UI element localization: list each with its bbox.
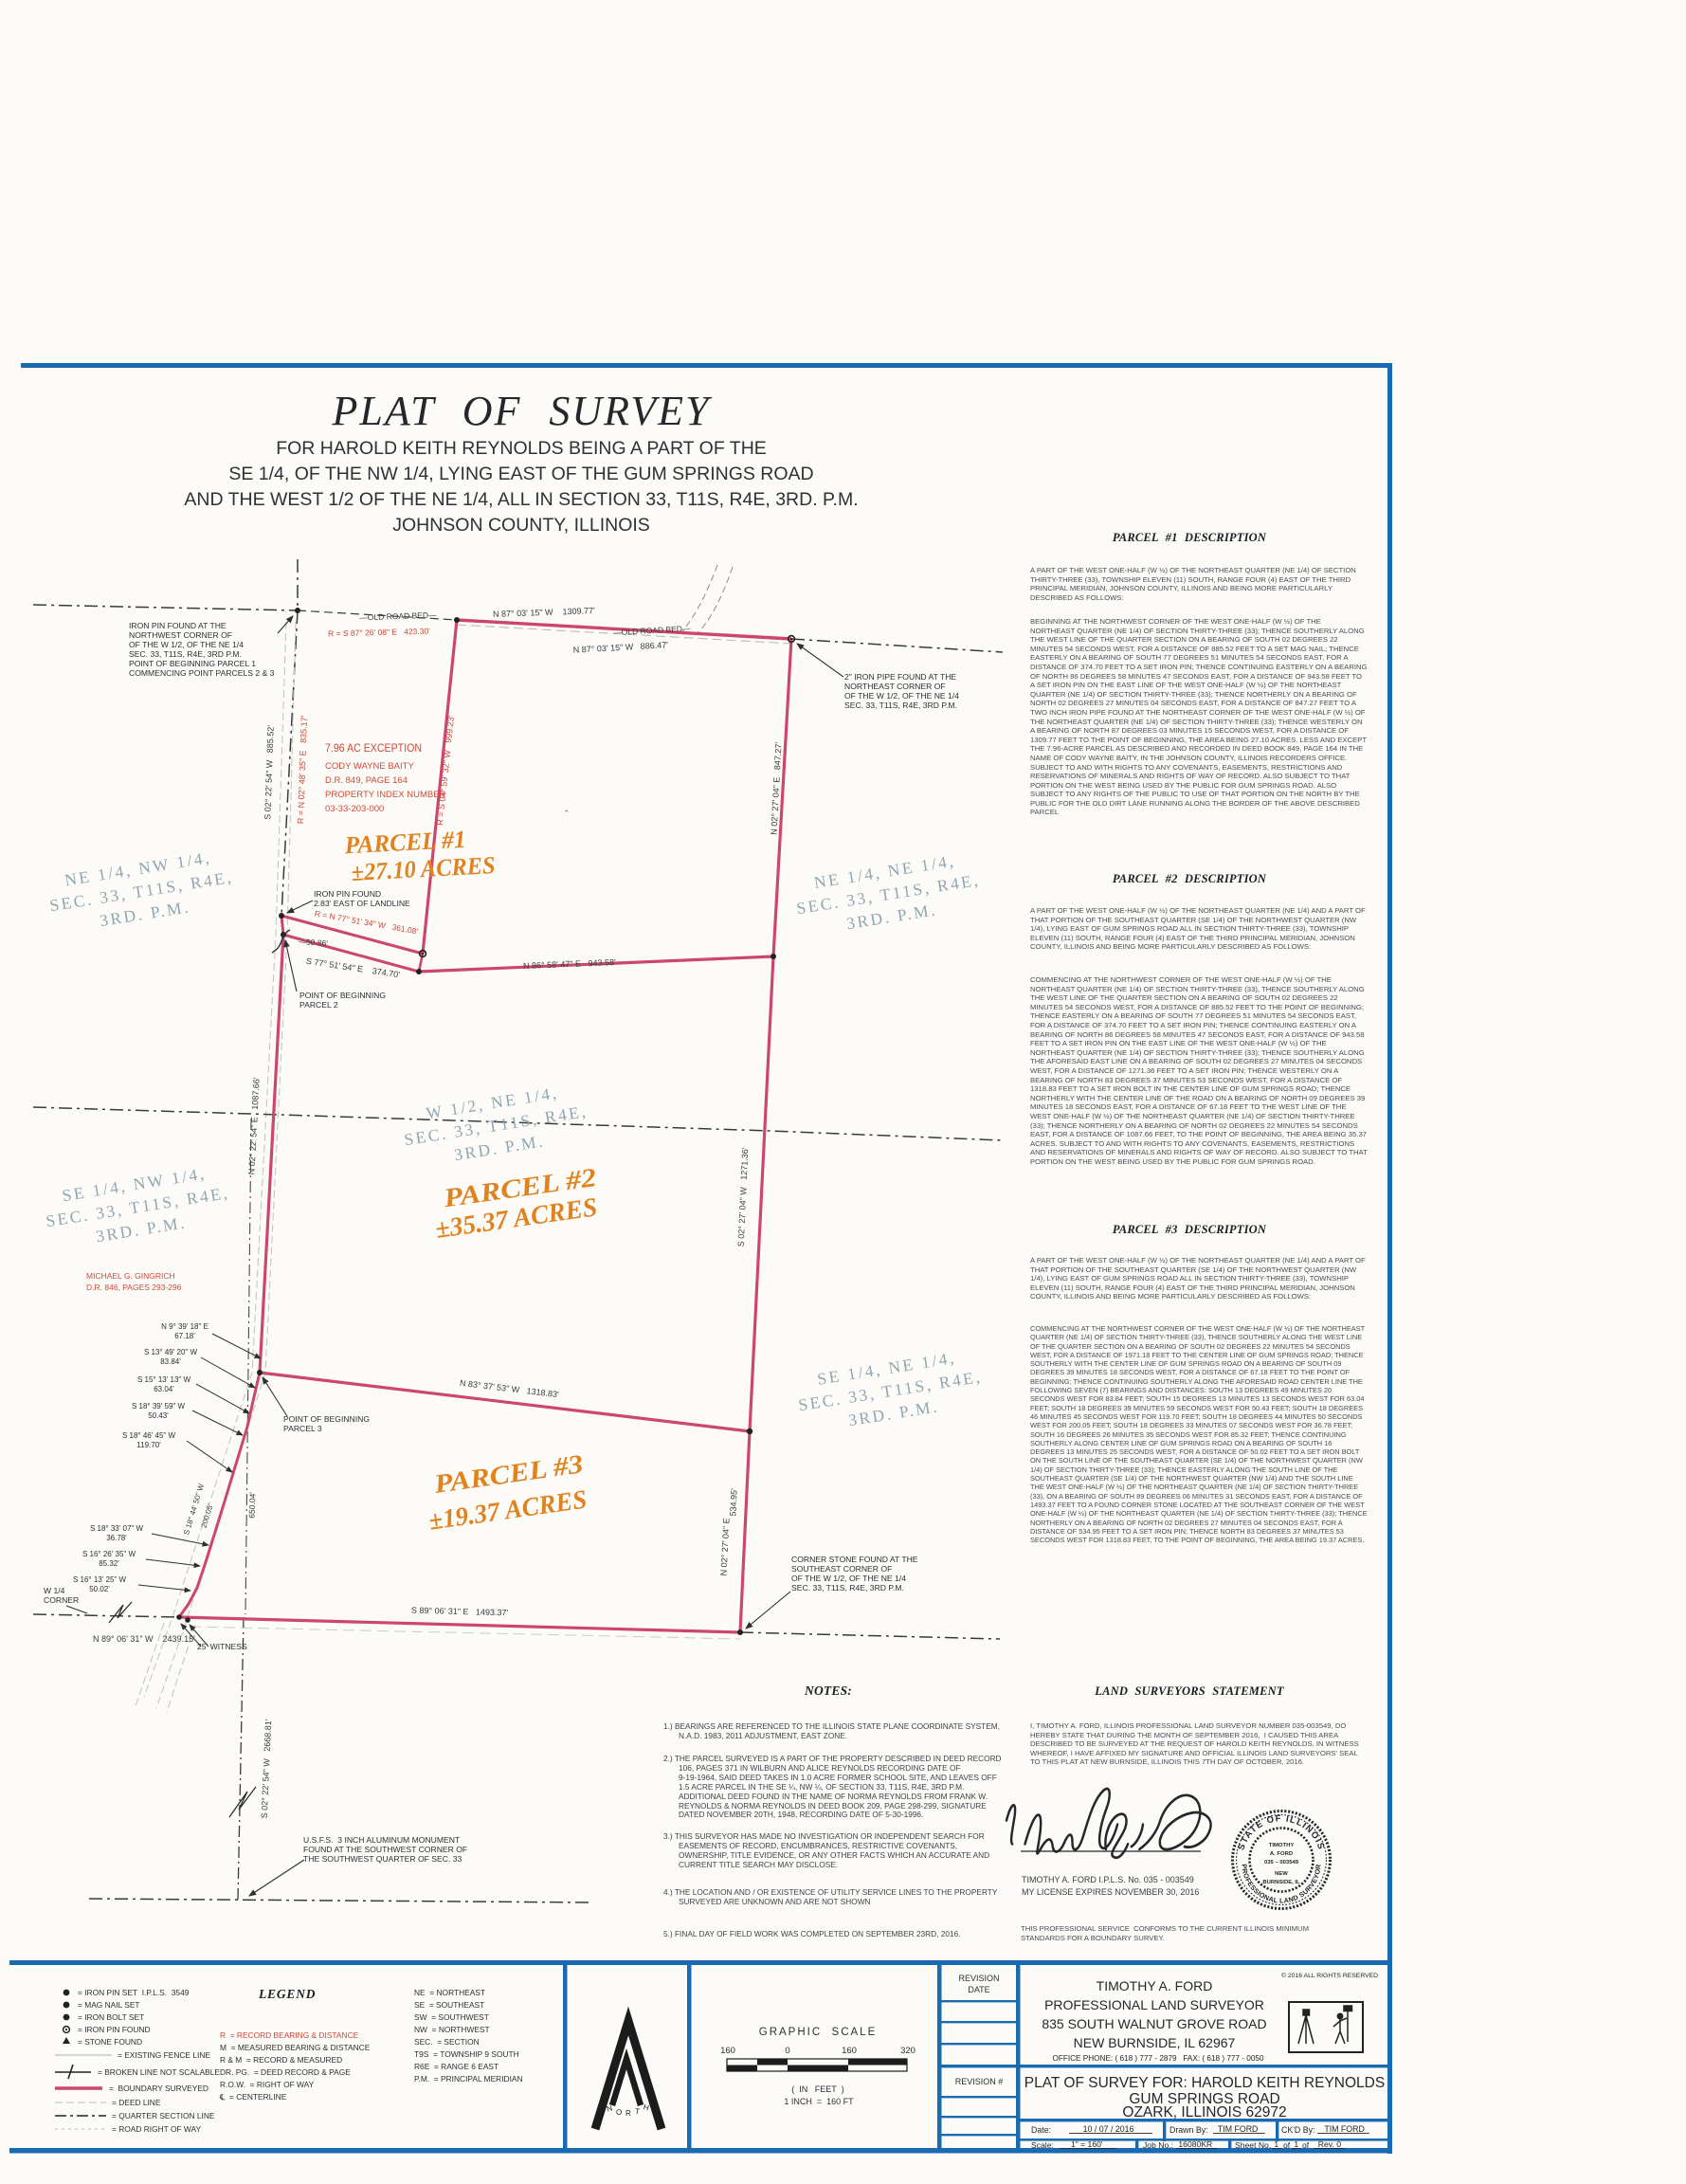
svg-text:R: R [625,2109,631,2118]
svg-text:320: 320 [900,2046,916,2056]
svg-text:N 89° 06' 31" W 2439.15': N 89° 06' 31" W 2439.15' [93,1634,195,1644]
svg-text:T9S = TOWNSHIP 9 SOUTH: T9S = TOWNSHIP 9 SOUTH [414,2049,519,2059]
svg-text:Rev. 0: Rev. 0 [1314,2139,1346,2149]
svg-text:NW = NORTHWEST: NW = NORTHWEST [414,2025,490,2034]
svg-text:of: of [1302,2140,1310,2150]
svg-text:—50.86': —50.86' [298,937,328,948]
svg-text:1" = 160': 1" = 160' [1060,2139,1116,2149]
svg-text:℄ = CENTERLINE: ℄ = CENTERLINE [219,2092,287,2102]
svg-text:⌃: ⌃ [563,809,571,818]
svg-text:1 INCH = 160 FT: 1 INCH = 160 FT [784,2097,854,2106]
svg-text:= EXISTING FENCE LINE: = EXISTING FENCE LINE [118,2050,210,2060]
svg-text:S 77° 51' 54" E 374.70': S 77° 51' 54" E 374.70' [305,956,400,980]
svg-text:( IN FEET ): ( IN FEET ) [791,2084,844,2094]
svg-text:10 / 07 / 2016: 10 / 07 / 2016 [1069,2124,1152,2134]
svg-text:Job No.:: Job No.: [1143,2140,1173,2150]
svg-text:TIMOTHY: TIMOTHY [1269,1843,1295,1848]
svg-text:REVISION #: REVISION # [955,2077,1004,2086]
svg-text:03-33-203-000: 03-33-203-000 [325,804,384,814]
svg-text:PROPERTY INDEX NUMBER: PROPERTY INDEX NUMBER [325,790,446,800]
svg-text:—OLD ROAD BED—: —OLD ROAD BED— [613,624,691,638]
svg-text:= MAG NAIL SET: = MAG NAIL SET [78,2000,140,2010]
svg-text:SEC. = SECTION: SEC. = SECTION [414,2037,480,2047]
svg-text:200.05': 200.05' [200,1502,215,1529]
svg-text:Drawn By:: Drawn By: [1169,2125,1208,2135]
svg-text:NE 1/4, NW 1/4,SEC. 33, T11S,: NE 1/4, NW 1/4,SEC. 33, T11S, R4E,3RD. P… [45,845,238,937]
svg-text:SE 1/4, NW 1/4,SEC. 33, T11S,: SE 1/4, NW 1/4,SEC. 33, T11S, R4E,3RD. P… [41,1160,234,1253]
svg-text:of: of [1283,2140,1291,2150]
svg-text:Scale:: Scale: [1031,2140,1054,2150]
svg-text:PROFESSIONAL LAND SURVEYOR: PROFESSIONAL LAND SURVEYOR [1044,1997,1264,2012]
svg-text:= DEED LINE: = DEED LINE [112,2098,161,2107]
svg-text:= QUARTER SECTION LINE: = QUARTER SECTION LINE [112,2111,215,2120]
svg-text:NEW BURNSIDE, IL 62967: NEW BURNSIDE, IL 62967 [1074,2035,1236,2050]
svg-text:© 2016 ALL RIGHTS RESERVED: © 2016 ALL RIGHTS RESERVED [1281,1972,1378,1979]
svg-text:= BOUNDARY SURVEYED: = BOUNDARY SURVEYED [109,2084,208,2093]
svg-text:GRAPHIC SCALE: GRAPHIC SCALE [759,2027,878,2038]
svg-text:= ROAD RIGHT OF WAY: = ROAD RIGHT OF WAY [112,2124,201,2134]
svg-text:DATE: DATE [968,1985,989,1994]
svg-text:P.M. = PRINCIPAL MERIDIAN: P.M. = PRINCIPAL MERIDIAN [414,2074,523,2084]
svg-text:S 02° 22' 54" W 885.52': S 02° 22' 54" W 885.52' [263,725,275,820]
svg-text:DR. PG. = DEED RECORD & PAGE: DR. PG. = DEED RECORD & PAGE [220,2067,351,2077]
svg-text:R = N 02° 48' 35" E 835.17': R = N 02° 48' 35" E 835.17' [296,715,309,824]
svg-text:N 02° 27' 04" E: N 02° 27' 04" E [718,1518,731,1576]
svg-text:534.95': 534.95' [728,1488,739,1517]
svg-text:NE 1/4, NE 1/4,SEC. 33, T11S,: NE 1/4, NE 1/4,SEC. 33, T11S, R4E,3RD. P… [791,847,985,940]
svg-text:M = MEASURED BEARING & DISTAN: M = MEASURED BEARING & DISTANCE [220,2043,371,2052]
svg-text:SE 1/4, NE 1/4,SEC. 33, T11S,: SE 1/4, NE 1/4,SEC. 33, T11S, R4E,3RD. P… [793,1344,987,1437]
svg-text:TIMOTHY A. FORD: TIMOTHY A. FORD [1097,1978,1213,1993]
svg-text:S 02° 27' 04" W 1271.36': S 02° 27' 04" W 1271.36' [736,1147,751,1247]
svg-text:TIM FORD: TIM FORD [1213,2124,1265,2134]
svg-text:BURNSIDE, IL: BURNSIDE, IL [1262,1880,1300,1885]
svg-text:A. FORD: A. FORD [1270,1851,1293,1857]
svg-text:0: 0 [785,2046,789,2056]
svg-text:= IRON BOLT SET: = IRON BOLT SET [78,2012,144,2022]
svg-text:W 1/2, NE 1/4,SEC. 33, T11S, R: W 1/2, NE 1/4,SEC. 33, T11S, R4E,3RD. P.… [399,1079,592,1172]
svg-text:O: O [615,2108,623,2118]
svg-text:H: H [643,2102,650,2112]
svg-text:T: T [634,2107,640,2117]
svg-text:CK'D By:: CK'D By: [1281,2125,1314,2135]
svg-text:N 86° 58' 47" E 943.58': N 86° 58' 47" E 943.58' [523,957,616,971]
svg-text:D.R. 849, PAGE 164: D.R. 849, PAGE 164 [325,775,408,786]
svg-text:CODY WAYNE BAITY: CODY WAYNE BAITY [325,761,414,772]
svg-text:Sheet No.: Sheet No. [1235,2140,1271,2150]
svg-text:SE = SOUTHEAST: SE = SOUTHEAST [414,2000,484,2010]
svg-text:7.96 AC EXCEPTION: 7.96 AC EXCEPTION [325,741,422,755]
svg-text:S 89° 06' 31" E 1493.37': S 89° 06' 31" E 1493.37' [411,1606,509,1618]
svg-text:N 87° 03' 15" W 886.47': N 87° 03' 15" W 886.47' [572,640,668,655]
svg-text:TIM FORD: TIM FORD [1317,2124,1369,2134]
svg-text:NE = NORTHEAST: NE = NORTHEAST [414,1988,485,1997]
svg-text:MICHAEL G. GINGRICH: MICHAEL G. GINGRICH [86,1271,175,1281]
svg-text:835 SOUTH WALNUT GROVE ROAD: 835 SOUTH WALNUT GROVE ROAD [1042,2016,1266,2031]
svg-text:035 – 003549: 035 – 003549 [1264,1860,1299,1865]
svg-text:1: 1 [1272,2139,1281,2149]
svg-text:R & M = RECORD & MEASURED: R & M = RECORD & MEASURED [220,2055,342,2065]
svg-text:= IRON PIN FOUND: = IRON PIN FOUND [78,2025,151,2034]
svg-text:REVISION: REVISION [958,1974,999,1983]
svg-text:S 02° 22' 54" W 2668.81': S 02° 22' 54" W 2668.81' [260,1719,274,1818]
svg-text:PLAT OF SURVEY FOR: HAROLD KEI: PLAT OF SURVEY FOR: HAROLD KEITH REYNOLD… [1024,2075,1385,2091]
svg-text:= STONE FOUND: = STONE FOUND [78,2037,142,2047]
svg-text:650.04': 650.04' [247,1492,258,1519]
svg-text:—OLD ROAD BED—: —OLD ROAD BED— [359,610,437,623]
svg-text:= IRON PIN SET I.P.L.S. 3549: = IRON PIN SET I.P.L.S. 3549 [78,1988,190,1997]
svg-text:R = S 87° 26' 08" E 423.30': R = S 87° 26' 08" E 423.30' [328,627,430,639]
svg-text:= BROKEN LINE NOT SCALABLE: = BROKEN LINE NOT SCALABLE [98,2067,220,2077]
svg-text:NEW: NEW [1275,1871,1288,1877]
svg-text:160: 160 [720,2046,735,2056]
svg-text:OZARK, ILLINOIS 62972: OZARK, ILLINOIS 62972 [1122,2104,1286,2120]
svg-text:N 87° 03' 15" W 1309.77': N 87° 03' 15" W 1309.77' [493,606,595,619]
svg-text:R.O.W. = RIGHT OF WAY: R.O.W. = RIGHT OF WAY [220,2080,315,2089]
svg-text:D.R. 846, PAGES 293-296: D.R. 846, PAGES 293-296 [86,1283,182,1292]
svg-text:N 83° 37' 53" W 1318.83': N 83° 37' 53" W 1318.83' [459,1378,559,1399]
svg-text:R = S 04° 59' 32" W 999.23': R = S 04° 59' 32" W 999.23' [435,715,456,826]
svg-text:R = N 77° 51' 34" W 361.08': R = N 77° 51' 34" W 361.08' [314,909,419,937]
svg-text:160: 160 [842,2046,857,2056]
svg-text:R = RECORD BEARING & DISTANCE: R = RECORD BEARING & DISTANCE [220,2030,359,2040]
svg-text:R6E = RANGE 6 EAST: R6E = RANGE 6 EAST [414,2062,499,2071]
svg-text:16080KR: 16080KR [1176,2139,1217,2149]
svg-text:1: 1 [1292,2139,1301,2149]
svg-text:N 02° 22' 54" E 1087.66': N 02° 22' 54" E 1087.66' [246,1077,261,1174]
svg-text:OFFICE PHONE: ( 618 ) 777 - 28: OFFICE PHONE: ( 618 ) 777 - 2879 FAX: ( … [1053,2054,1264,2063]
svg-text:LEGEND: LEGEND [258,1987,316,2001]
svg-text:SW = SOUTHWEST: SW = SOUTHWEST [414,2012,489,2022]
svg-text:Date:: Date: [1031,2125,1051,2135]
